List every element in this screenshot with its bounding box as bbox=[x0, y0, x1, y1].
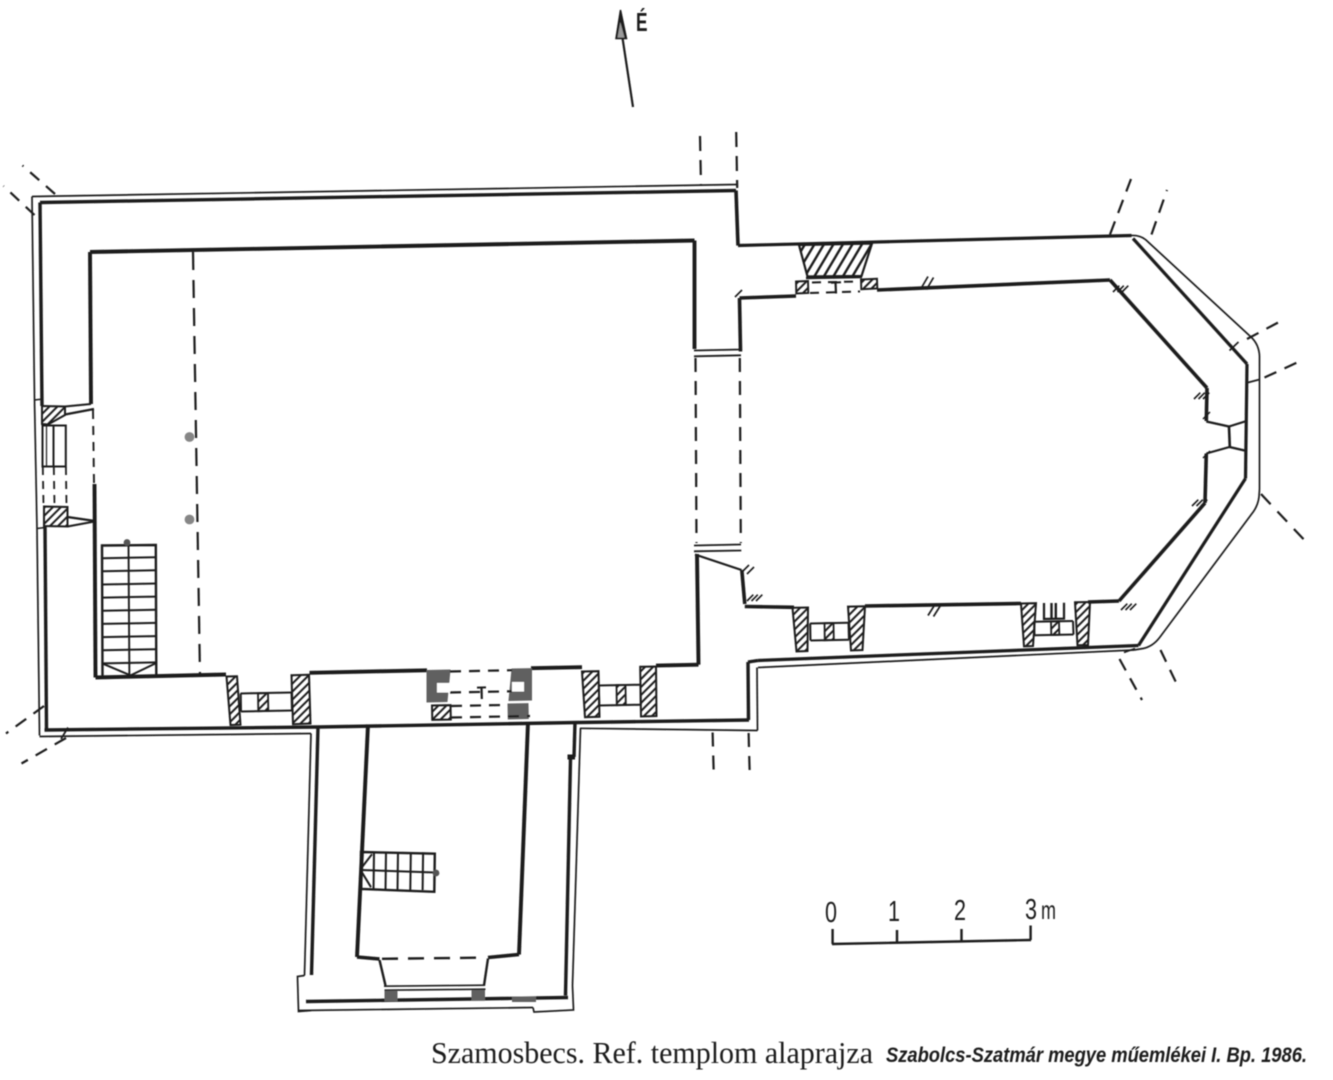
svg-text:2: 2 bbox=[954, 895, 966, 927]
svg-text:1: 1 bbox=[888, 896, 900, 928]
svg-text:Szamosbecs. Ref. templom alapr: Szamosbecs. Ref. templom alaprajza bbox=[431, 1036, 873, 1070]
svg-text:0: 0 bbox=[825, 897, 837, 929]
svg-text:Szabolcs-Szatmár megye műemlék: Szabolcs-Szatmár megye műemlékei I. Bp. … bbox=[886, 1043, 1307, 1067]
svg-text:É: É bbox=[636, 7, 648, 37]
svg-text:3: 3 bbox=[1025, 894, 1037, 926]
svg-text:m: m bbox=[1041, 895, 1056, 925]
